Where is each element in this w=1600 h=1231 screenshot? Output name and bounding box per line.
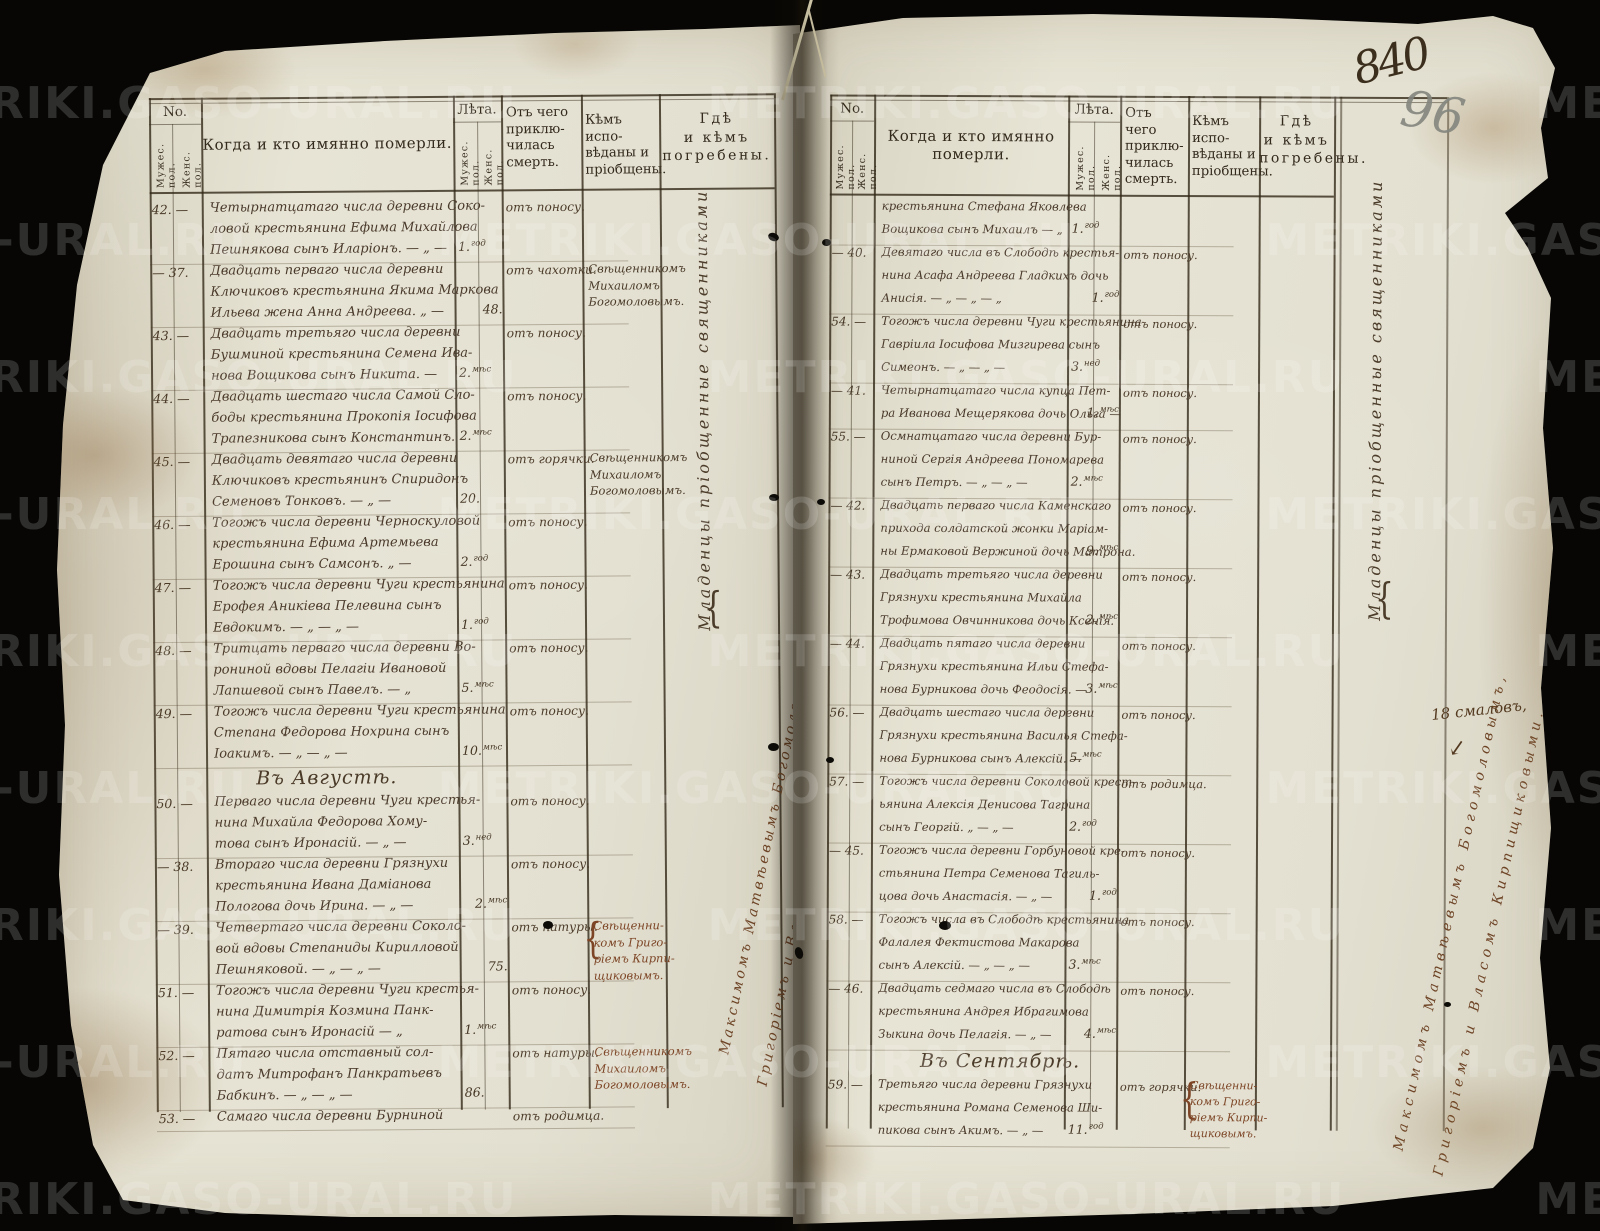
entry-text-line: Четырнатцатаго числа деревни Соко- — [210, 199, 485, 216]
death-record-entry: 44. —Двадцать шестаго числа Самой Сло-бо… — [53, 385, 776, 454]
entry-cause-of-death: отъ поносу. — [1124, 248, 1198, 262]
entry-age: 1.мѣс — [1067, 405, 1119, 420]
entry-age: 3.нед — [459, 832, 507, 848]
entry-age-value: 1. — [1087, 405, 1099, 420]
column-header-cause: Отъ чегоприклю-чиласьсмерть. — [1125, 106, 1187, 189]
entry-age-unit: мѣс — [474, 679, 493, 689]
entry-age: 86. — [461, 1084, 509, 1099]
entry-text-line: Симеонъ. — „ — „ — — [881, 360, 1005, 375]
entry-cause-of-death: отъ поносу. — [507, 326, 586, 341]
entry-text-line: Трапезникова сынъ Константинъ. — [212, 430, 456, 447]
entry-number: — 46. — [828, 981, 868, 995]
entry-age-value: 3. — [1085, 681, 1097, 696]
entry-number: 56. — — [830, 705, 870, 719]
confessor-line: Богомоловымъ. — [588, 293, 686, 310]
entry-text-line: Осмнатцатаго числа деревни Бур- — [881, 429, 1101, 444]
entry-age-value: 20. — [460, 491, 480, 506]
entry-cause-of-death: отъ поносу. — [510, 704, 589, 719]
entry-text-line: Лапшевой сынъ Павелъ. — „ — [213, 682, 411, 699]
entry-age-value: 1. — [1072, 221, 1084, 236]
entry-text-line: Степана Федорова Нохрина сынъ — [214, 724, 450, 741]
folio-number-pencil: 96 — [1396, 79, 1469, 147]
death-record-entry: — 37.Двадцать перваго числа деревниКлючи… — [52, 259, 775, 328]
header-line: пріобщены. — [585, 162, 658, 179]
entry-age-unit: мѣс — [472, 427, 491, 437]
entry-age-unit: год — [1085, 221, 1100, 231]
column-sublabel: Мужес. пол. — [1075, 126, 1097, 191]
entry-age-unit: год — [1089, 1122, 1104, 1132]
entry-text-line: Ключиковъ крестьянина Якима Маркова — [210, 282, 498, 299]
entry-number: 52. — — [158, 1048, 206, 1063]
entry-text-line: Ерошина сынъ Самсонъ. „ — — [212, 556, 411, 573]
entry-number: 50. — — [156, 796, 204, 811]
entry-confessor: СвѣщенникомъМихаиломъБогомоловымъ. — [594, 1043, 692, 1093]
entry-number: — 41. — [831, 383, 871, 397]
watermark-text: METRIKI.GASO-URAL.RU — [1535, 1174, 1600, 1225]
entry-text-line: ратова сынъ Иронасій — „ — [216, 1024, 403, 1040]
entry-text-line: цова дочь Анастасія. — „ — — [879, 889, 1053, 904]
entry-number: — 40. — [832, 245, 872, 259]
entry-text-line: Евдокимъ. — „ — „ — — [213, 620, 359, 636]
records-rows: 42. —Четырнатцатаго числа деревни Соко-л… — [52, 196, 782, 1132]
entry-age-unit: год — [1105, 290, 1120, 300]
ink-blot — [1444, 1002, 1451, 1007]
column-sublabel: Женс. пол. — [1101, 126, 1123, 191]
entry-age: 3.мѣс — [1066, 681, 1118, 696]
entry-cause-of-death: отъ горячки. — [508, 452, 595, 467]
death-record-entry: 47. —Тогожъ числа деревни Чуги крестьяни… — [55, 574, 778, 643]
death-record-entry: 52. —Пятаго числа отставный сол-датъ Мит… — [58, 1042, 781, 1111]
entry-age: 1.год — [454, 238, 502, 254]
table-rule-line — [1068, 122, 1120, 123]
death-record-entry: — 45.Тогожъ числа деревни Горбуновой кре… — [792, 842, 1331, 913]
entry-text-line: крестьянина Ивана Даміанова — [215, 877, 431, 894]
entry-age-value: 3. — [1071, 359, 1083, 374]
entry-age-value: 1. — [464, 1022, 476, 1037]
table-rule-line — [830, 120, 874, 121]
entry-text-line: нина Михайла Федорова Хому- — [215, 814, 428, 831]
entry-age-value: 1. — [1092, 290, 1104, 305]
column-sublabel: Мужес. пол. — [835, 124, 857, 189]
entry-text-line: крестьянина Стефана Яковлева — [882, 199, 1087, 214]
entry-age-value: 2. — [460, 554, 472, 569]
confessor-line: комъ Григо- — [593, 934, 674, 951]
entry-cause-of-death: отъ чахотки. — [506, 263, 597, 278]
entry-number: 43. — — [153, 328, 201, 343]
entry-cause-of-death: отъ поносу. — [509, 641, 588, 656]
entry-confessor: СвѣщенникомъМихаиломъБогомоловымъ. — [588, 260, 686, 310]
entry-text-line: Іоакимъ. — „ — „ — — [214, 746, 348, 762]
death-record-entry: — 46.Двадцать седмаго числа въ Слободѣкр… — [791, 980, 1330, 1051]
entry-number: 55. — — [831, 429, 871, 443]
entry-text-line: ниной Сергія Андреева Пономарева — [881, 452, 1104, 467]
header-line: Кѣмъ испо- — [585, 112, 658, 146]
entry-confessor: Свѣщенни-комъ Григо-ріемъ Кирпи-щиковымъ… — [593, 917, 675, 984]
entry-cause-of-death: отъ поносу. — [1123, 432, 1197, 446]
ink-blot — [768, 743, 779, 751]
entry-text-line: Двадцать девятаго числа деревни — [212, 451, 458, 468]
entry-text-line: Пятаго числа отставный сол- — [216, 1045, 433, 1062]
records-rows: крестьянина Стефана ЯковлеваВощикова сын… — [791, 198, 1334, 1147]
death-record-entry: 55. —Осмнатцатаго числа деревни Бур-нино… — [794, 428, 1333, 499]
entry-text-line: Зыкина дочь Пелагія. — „ — — [878, 1027, 1051, 1042]
column-header-age: Лѣта. — [1068, 99, 1120, 121]
entry-text-line: Тогожъ числа деревни Горбуновой кре- — [879, 843, 1125, 858]
entry-number: 49. — — [156, 706, 204, 721]
entry-text-line: сынъ Георгій. „ — „ — — [879, 820, 1014, 835]
entry-age-value: 1. — [458, 239, 470, 254]
table-column-line — [1336, 97, 1342, 1131]
entry-text-line: Самаго числа деревни Бурниной — [217, 1108, 443, 1125]
ink-blot — [939, 921, 951, 930]
column-sublabel: Мужес. пол. — [459, 126, 481, 186]
entry-text-line: Тритцать перваго числа деревни Во- — [213, 640, 476, 657]
death-record-entry: 54. —Тогожъ числа деревни Чуги крестьяни… — [794, 313, 1333, 384]
header-line: погребены. — [659, 146, 774, 165]
entry-age: 2.год — [1065, 819, 1117, 834]
entry-age: 5.мѣс — [457, 679, 505, 695]
entry-number: 44. — — [153, 391, 201, 406]
entry-age-unit: мѣс — [1082, 750, 1101, 760]
confessor-line: Михаиломъ — [588, 276, 686, 293]
column-header-no: No. — [149, 101, 201, 123]
header-line: чилась — [1125, 155, 1187, 172]
entry-age: 1.год — [1065, 888, 1117, 903]
death-record-entry: 51. —Тогожъ числа деревни Чуги крестья-н… — [58, 979, 781, 1048]
death-record-entry: 48. —Тритцать перваго числа деревни Во-р… — [55, 637, 778, 706]
entry-text-line: Бушминой крестьянина Семена Ива- — [211, 346, 473, 363]
entry-age: 9.мѣс — [1066, 543, 1118, 558]
entry-text-line: Ключиковъ крестьянинъ Спиридонъ — [212, 472, 468, 489]
entry-text-line: ьянина Алексія Денисова Тагрина — [879, 797, 1090, 812]
header-line: вѣданы и — [1192, 147, 1258, 164]
death-record-entry: — 43.Двадцать третьяго числа деревниГряз… — [793, 566, 1332, 637]
entry-number: 54. — — [831, 314, 871, 328]
entry-age: 48. — [454, 301, 502, 316]
entry-age-value: 3. — [1068, 957, 1080, 972]
entry-cause-of-death: отъ поносу. — [509, 578, 588, 593]
entry-text-line: Вощикова сынъ Михаилъ — „ — [882, 222, 1063, 237]
entry-age-value: 1. — [461, 617, 473, 632]
confessor-line: Свѣщенникомъ — [588, 260, 686, 277]
confessor-line: Михаиломъ — [590, 465, 688, 482]
entry-age-unit: год — [471, 239, 486, 249]
entry-age-value: 5. — [1069, 750, 1081, 765]
death-record-entry: 57. —Тогожъ числа деревни Соколовой крес… — [792, 773, 1331, 844]
entry-age-unit: год — [474, 617, 489, 627]
entry-cause-of-death: отъ поносу. — [506, 200, 585, 215]
month-heading: Въ Августѣ. — [256, 766, 397, 789]
death-record-entry: 59. —Третьяго числа деревни Грязнухикрес… — [791, 1076, 1330, 1147]
entry-age-value: 4. — [1084, 1026, 1096, 1041]
confessor-line: Свѣщенникомъ — [594, 1043, 692, 1060]
entry-cause-of-death: отъ поносу. — [1121, 915, 1195, 929]
row-separator-line — [826, 1145, 1230, 1148]
entry-text-line: Тогожъ числа деревни Чуги крестья- — [216, 982, 479, 999]
death-record-entry: — 39.Четвертаго числа деревни Соколо-вой… — [57, 916, 780, 985]
entry-number: — 43. — [830, 567, 870, 581]
entry-age: 2.мѣс — [459, 895, 507, 911]
entry-age: 4.мѣс — [1064, 1026, 1116, 1041]
entry-text-line: датъ Митрофанъ Панкратьевъ — [217, 1066, 442, 1083]
header-line: приклю- — [506, 121, 580, 138]
entry-number: — 44. — [830, 636, 870, 650]
entry-age: 2.мѣс — [455, 364, 503, 380]
entry-cause-of-death: отъ поносу. — [1123, 386, 1197, 400]
entry-number: 48. — — [155, 643, 203, 658]
ink-blot — [822, 239, 831, 246]
month-heading: Въ Сентябрѣ. — [920, 1050, 1080, 1073]
death-record-entry: 50. —Перваго числа деревни Чуги крестья-… — [56, 790, 779, 859]
entry-age: 3.мѣс — [1064, 957, 1116, 972]
column-header-when-who: Когда и кто имянно померли. — [201, 96, 454, 192]
entry-text-line: крестьянина Ефима Артемьева — [212, 535, 438, 552]
ink-blot — [769, 494, 779, 501]
entry-number: 51. — — [158, 985, 206, 1000]
entry-text-line: Тогожъ числа деревни Черноскуловой — [212, 514, 480, 531]
entry-text-line: Грязнухи крестьянина Василья Стефа- — [879, 728, 1127, 743]
entry-text-line: Двадцать перваго числа деревни — [210, 262, 443, 279]
entry-number: — 45. — [829, 843, 869, 857]
entry-text-line: Фалалея Фектистова Макарова — [879, 935, 1080, 950]
entry-number: 47. — — [155, 580, 203, 595]
column-sublabel: Женс. пол. — [181, 128, 203, 188]
entry-age: 1.мѣс — [460, 1021, 508, 1037]
ink-blot — [826, 757, 834, 763]
entry-number: 45. — — [154, 454, 202, 469]
table-rule-line — [453, 121, 501, 122]
entry-text-line: Двадцать третьяго числа деревни — [211, 325, 461, 342]
death-record-entry: 42. —Четырнатцатаго числа деревни Соко-л… — [52, 196, 775, 265]
column-header-confessed: Кѣмъ испо-вѣданы ипріобщены. — [585, 112, 659, 179]
confessor-line: комъ Григо- — [1190, 1094, 1268, 1110]
header-line: Гдѣ — [659, 109, 774, 128]
entry-cause-of-death: отъ поносу. — [507, 389, 586, 404]
header-line: и кѣмъ — [1259, 131, 1334, 150]
entry-number: — 39. — [157, 922, 205, 937]
entry-age-unit: мѣс — [1099, 612, 1118, 622]
entry-age-unit: год — [1102, 888, 1117, 898]
death-records-table-left: No.Лѣта.Мужес. пол.Женс. пол.Мужес. пол.… — [50, 22, 804, 1220]
entry-text-line: това сынъ Иронасій. — „ — — [215, 835, 407, 852]
death-record-entry: 58. —Тогожъ числа въ Слободѣ крестьянина… — [791, 911, 1330, 982]
death-record-entry: — 44.Двадцать пятаго числа деревниГрязну… — [793, 635, 1332, 706]
entry-text-line: Бабкинъ. — „ — „ — — [217, 1088, 353, 1104]
confessor-line: Михаиломъ — [594, 1059, 692, 1076]
entry-text-line: Тогожъ числа въ Слободѣ крестьянина — [879, 912, 1129, 927]
entry-text-line: Четвертаго числа деревни Соколо- — [215, 919, 466, 936]
death-record-entry: 46. —Тогожъ числа деревни Черноскуловойк… — [54, 511, 777, 580]
entry-age: 20. — [456, 490, 504, 505]
header-line: Отъ чего — [1125, 106, 1187, 139]
column-sublabel: Женс. пол. — [483, 125, 505, 185]
entry-number: 53. — — [159, 1111, 207, 1126]
entry-age-value: 11. — [1068, 1122, 1088, 1137]
entry-text-line: рониной вдовы Пелагіи Ивановой — [213, 661, 446, 678]
death-record-entry: 53. —Самаго числа деревни Бурнинойотъ ро… — [59, 1105, 782, 1132]
entry-number: 42. — — [152, 202, 200, 217]
column-header-when-who: Когда и кто имянно померли. — [874, 95, 1068, 195]
header-line: смерть. — [506, 154, 580, 171]
entry-age: 1.год — [457, 616, 505, 632]
entry-age-unit: год — [473, 554, 488, 564]
entry-text-line: вой вдовы Степаниды Кирилловой — [216, 940, 459, 957]
column-header-buried: Гдѣи кѣмъпогребены. — [659, 109, 774, 165]
entry-text-line: боды крестьянина Прокопія Іосифова — [211, 409, 477, 426]
entry-text-line: Четырнатцатаго числа купца Пет- — [881, 383, 1111, 398]
entry-text-line: пикова сынъ Акимъ. — „ — — [878, 1123, 1044, 1138]
entry-age: 10.мѣс — [458, 742, 506, 758]
entry-age-value: 2. — [1069, 819, 1081, 834]
entry-age-value: 3. — [463, 833, 475, 848]
entry-confessor: Свѣщенни-комъ Григо-ріемъ Кирпи-щиковымъ… — [1190, 1078, 1268, 1142]
entry-age-value: 5. — [461, 680, 473, 695]
entry-cause-of-death: отъ поносу. — [512, 983, 591, 998]
table-rule-line — [149, 124, 201, 125]
entry-text-line: Третьяго числа деревни Грязнухи — [878, 1077, 1092, 1092]
confessor-line: Богомоловымъ. — [590, 482, 688, 499]
death-record-entry: — 38.Втораго числа деревни Грязнухикрест… — [57, 853, 780, 922]
entry-cause-of-death: отъ поносу. — [510, 794, 589, 809]
entry-text-line: Двадцать седмаго числа въ Слободѣ — [878, 981, 1110, 996]
entry-text-line: Двадцать шестаго числа Самой Сло- — [211, 388, 475, 405]
entry-age-unit: мѣс — [1097, 1026, 1116, 1036]
entry-text-line: стьянина Петра Семенова Тагиль- — [879, 866, 1100, 881]
header-line: смерть. — [1125, 172, 1187, 189]
entry-text-line: Пологова дочь Ирина. — „ — — [215, 898, 413, 915]
death-record-entry: 45. —Двадцать девятаго числа деревниКлюч… — [54, 448, 777, 517]
entry-number: — 38. — [157, 859, 205, 874]
confessor-line: Богомоловымъ. — [595, 1076, 693, 1093]
death-record-entry: крестьянина Стефана ЯковлеваВощикова сын… — [795, 198, 1334, 246]
scanned-metric-book-spread: No.Лѣта.Мужес. пол.Женс. пол.Мужес. пол.… — [0, 0, 1600, 1231]
entry-age: 1.год — [1068, 221, 1120, 236]
entry-cause-of-death: отъ поносу. — [1123, 317, 1197, 331]
entry-age: 5.мѣс — [1065, 750, 1117, 765]
death-record-entry: — 42.Двадцать перваго числа Каменскагопр… — [793, 497, 1332, 568]
entry-age-unit: год — [1082, 819, 1097, 829]
entry-number: — 37. — [152, 265, 200, 280]
header-line: чилась — [506, 138, 580, 155]
entry-cause-of-death: отъ поносу. — [508, 515, 587, 530]
entry-text-line: Тогожъ числа деревни Чуги крестьянина — [214, 702, 506, 719]
entry-cause-of-death: отъ натуры. — [512, 1046, 599, 1061]
entry-age: 11.год — [1064, 1122, 1116, 1137]
entry-text-line: Семеновъ Тонковъ. — „ — — [212, 493, 391, 509]
entry-text-line: ловой крестьянина Ефима Михайлова — [210, 220, 478, 237]
entry-age-unit: мѣс — [483, 742, 502, 752]
entry-text-line: Девятаго числа въ Слободѣ крестья- — [882, 245, 1120, 260]
row-separator-line — [157, 1127, 635, 1132]
header-line: Гдѣ — [1259, 112, 1334, 131]
confessor-line: ріемъ Кирпи- — [594, 950, 675, 967]
column-sublabel: Мужес. пол. — [155, 128, 177, 188]
entry-number: 46. — — [154, 517, 202, 532]
entry-text-line: нова Бурникова дочь Феодосія. — — [880, 682, 1087, 697]
vertical-note-text: Младенцы пріобщенные священниками — [692, 189, 714, 631]
entry-text-line: Анисія. — „ — „ — „ — [881, 291, 1001, 306]
header-line: Отъ чего — [506, 105, 580, 122]
entry-text-line: Тогожъ числа деревни Чуги крестьянина — [213, 576, 505, 593]
entry-text-line: Втораго числа деревни Грязнухи — [215, 856, 448, 873]
death-record-entry: — 40.Девятаго числа въ Слободѣ крестья-н… — [794, 244, 1333, 315]
confessor-line: Свѣщенни- — [1190, 1078, 1268, 1094]
entry-cause-of-death: отъ поносу. — [511, 857, 590, 872]
entry-age-value: 86. — [465, 1085, 485, 1100]
entry-age: 2.год — [456, 553, 504, 569]
entry-text-line: нина Асафа Андреева Гладкихъ дочь — [881, 268, 1108, 283]
entry-text-line: сынъ Алексій. — „ — „ — — [878, 958, 1030, 973]
entry-age-value: 2. — [475, 896, 487, 911]
entry-cause-of-death: отъ поносу. — [1122, 501, 1196, 515]
entry-cause-of-death: отъ родимца. — [513, 1109, 604, 1124]
entry-age-unit: мѣс — [1081, 957, 1100, 967]
vertical-note-brace: { — [704, 583, 723, 632]
entry-age: 2.мѣс — [455, 427, 503, 443]
register-page-left: No.Лѣта.Мужес. пол.Женс. пол.Мужес. пол.… — [55, 25, 800, 1217]
entry-number: 59. — — [828, 1077, 868, 1091]
confessor-line: ріемъ Кирпи- — [1190, 1110, 1268, 1126]
header-line: приклю- — [1125, 139, 1187, 156]
entry-cause-of-death: отъ родимца. — [1121, 777, 1206, 791]
entry-text-line: прихода солдатской жонки Маріам- — [880, 521, 1108, 536]
entry-text-line: Двадцать пятаго числа деревни — [880, 636, 1086, 651]
column-header-no: No. — [830, 97, 874, 119]
entry-text-line: Двадцать перваго числа Каменскаго — [880, 498, 1111, 513]
entry-age-unit: мѣс — [1084, 474, 1103, 484]
death-record-entry: 43. —Двадцать третьяго числа деревниБушм… — [53, 322, 776, 391]
entry-text-line: Тогожъ числа деревни Соколовой крест- — [879, 774, 1136, 789]
entry-age-unit: мѣс — [488, 895, 507, 905]
entry-text-line: Пешняковой. — „ — „ — — [216, 961, 381, 977]
header-line: пріобщены. — [1192, 164, 1258, 181]
ink-blot — [817, 499, 825, 505]
entry-age-value: 2. — [459, 428, 471, 443]
vertical-note-brace: { — [1375, 574, 1394, 623]
entry-text-line: Двадцать третьяго числа деревни — [880, 567, 1103, 582]
entry-age-value: 9. — [1086, 543, 1098, 558]
entry-text-line: Грязнухи крестьянина Михайла — [880, 590, 1082, 605]
ink-blot — [543, 921, 553, 929]
register-page-right: No.Лѣта.Мужес. пол.Женс. пол.Мужес. пол.… — [793, 8, 1565, 1225]
entry-age: 2.мѣс — [1067, 474, 1119, 489]
header-line: вѣданы и — [585, 145, 658, 162]
column-header-cause: Отъ чегоприклю-чиласьсмерть. — [506, 105, 581, 172]
entry-age-value: 2. — [1071, 474, 1083, 489]
entry-text-line: Гавріила Іосифова Мизгирева сынъ — [881, 337, 1100, 352]
entry-age: 1.год — [1067, 290, 1119, 305]
header-line: Кѣмъ испо- — [1192, 114, 1258, 147]
entry-age-unit: мѣс — [1098, 681, 1117, 691]
entry-age-unit: нед — [1084, 359, 1100, 369]
death-records-table-right: No.Лѣта.Мужес. пол.Женс. пол.Мужес. пол.… — [790, 6, 1567, 1226]
entry-text-line: Тогожъ числа деревни Чуги крестьянина — [881, 314, 1141, 329]
entry-age-value: 48. — [483, 301, 503, 316]
entry-age-value: 2. — [1086, 612, 1098, 627]
death-record-entry: 49. —Тогожъ числа деревни Чуги крестьяни… — [56, 700, 779, 769]
month-heading-row: Въ Сентябрѣ. — [791, 1049, 1330, 1078]
entry-confessor: СвѣщенникомъМихаиломъБогомоловымъ. — [590, 449, 688, 499]
header-line: погребены. — [1259, 149, 1334, 168]
entry-text-line: сынъ Петръ. — „ — „ — — [881, 475, 1028, 490]
watermark-text: METRIKI.GASO-URAL.RU — [1535, 900, 1600, 951]
entry-text-line: Перваго числа деревни Чуги крестья- — [214, 793, 480, 810]
entry-text-line: нова Бурникова сынъ Алексій. — — [879, 751, 1082, 766]
entry-text-line: нина Димитрія Козмина Панк- — [216, 1003, 434, 1020]
entry-age-value: 2. — [459, 365, 471, 380]
entry-age-value: 75. — [488, 958, 508, 973]
entry-age-unit: мѣс — [472, 364, 491, 374]
